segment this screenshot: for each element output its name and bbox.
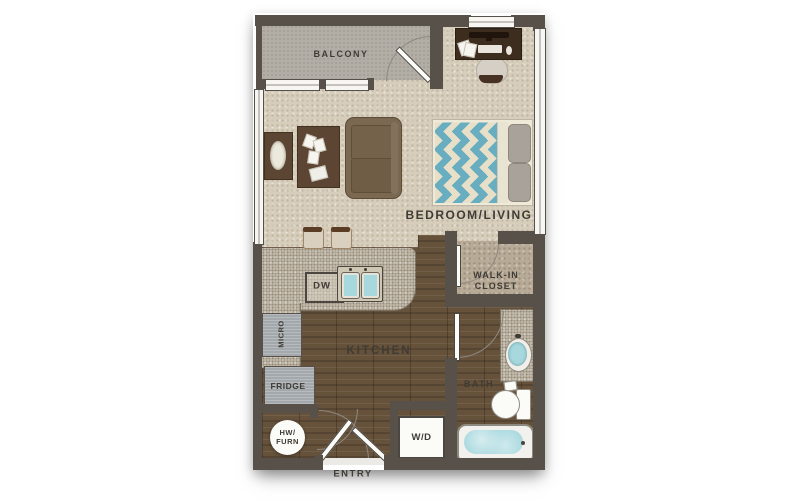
entry-jamb bbox=[315, 455, 323, 470]
room-label-bedroom-living: BEDROOM/LIVING bbox=[405, 208, 532, 222]
bedroom-top-window bbox=[468, 16, 515, 28]
hw-furn-label-line2: FURN bbox=[276, 438, 299, 446]
sink-basin bbox=[361, 272, 380, 299]
bath-vanity bbox=[500, 309, 535, 382]
faucet-icon bbox=[364, 268, 367, 271]
wall-segment bbox=[253, 242, 262, 469]
balcony-window bbox=[265, 79, 320, 91]
stool-back bbox=[331, 227, 350, 232]
wall-segment bbox=[533, 231, 545, 469]
bed-pillow bbox=[508, 163, 531, 202]
vanity-sink-basin bbox=[508, 342, 527, 366]
balcony-window bbox=[325, 79, 369, 91]
hw-closet-wall bbox=[253, 404, 317, 413]
bathtub-drain-icon bbox=[521, 441, 525, 445]
magazine bbox=[307, 150, 320, 164]
bar-stool bbox=[331, 228, 352, 249]
living-left-window bbox=[254, 89, 264, 245]
wall-segment bbox=[443, 15, 471, 27]
sofa-cushion bbox=[351, 158, 393, 193]
room-label-kitchen: KITCHEN bbox=[346, 345, 411, 357]
bathtub-water bbox=[464, 430, 523, 454]
bedroom-right-window bbox=[534, 28, 546, 235]
wall-segment bbox=[253, 458, 319, 470]
bed-pillow bbox=[508, 124, 531, 163]
mouse-icon bbox=[506, 46, 512, 55]
bed bbox=[432, 119, 533, 206]
bath-wall bbox=[445, 358, 457, 469]
toilet-bowl bbox=[491, 390, 520, 419]
kitchen-sink bbox=[337, 266, 383, 302]
blanket-chevron-pattern bbox=[435, 122, 497, 203]
desk-chair-back bbox=[479, 75, 503, 83]
faucet-icon bbox=[349, 268, 352, 271]
closet-wall bbox=[445, 294, 545, 307]
floorplan-canvas: HW/ FURN W/D bbox=[0, 0, 800, 500]
sofa-back bbox=[391, 122, 398, 194]
wall-segment bbox=[430, 15, 443, 89]
bed-sheet-fold bbox=[497, 122, 508, 203]
room-label-balcony: BALCONY bbox=[314, 49, 369, 59]
desk bbox=[455, 28, 522, 60]
studio-floorplan: HW/ FURN W/D bbox=[253, 13, 545, 470]
sofa-cushion bbox=[351, 125, 393, 160]
wd-nook-wall bbox=[390, 401, 398, 469]
bath-door-leaf bbox=[454, 313, 460, 361]
wd-label: W/D bbox=[412, 432, 432, 443]
monitor-stand bbox=[486, 38, 492, 41]
hw-furnace: HW/ FURN bbox=[270, 420, 305, 455]
room-label-bath: BATH bbox=[464, 379, 494, 389]
closet-label-line2: CLOSET bbox=[473, 281, 519, 292]
room-label-walk-in-closet: WALK-IN CLOSET bbox=[473, 270, 519, 293]
laptop-icon bbox=[309, 165, 329, 182]
bed-blanket bbox=[435, 122, 497, 203]
hw-closet-jamb bbox=[310, 404, 318, 418]
wd-nook-wall bbox=[390, 401, 445, 410]
sofa bbox=[345, 117, 402, 199]
dishwasher-label: DW bbox=[313, 281, 331, 292]
vanity-faucet-icon bbox=[515, 334, 521, 338]
fridge-label: FRIDGE bbox=[270, 381, 305, 391]
wall-segment bbox=[255, 15, 443, 26]
wood-floor-passage bbox=[418, 235, 448, 249]
bar-stool bbox=[303, 228, 324, 249]
toilet bbox=[491, 389, 531, 419]
coffee-table bbox=[297, 126, 340, 188]
desk-papers bbox=[463, 42, 478, 58]
stool-back bbox=[303, 227, 322, 232]
microwave-label: MICRO bbox=[277, 320, 286, 348]
closet-label-line1: WALK-IN bbox=[473, 270, 519, 281]
washer-dryer: W/D bbox=[398, 416, 445, 459]
wall-segment bbox=[384, 458, 545, 470]
sink-basin bbox=[341, 272, 360, 299]
entry-threshold bbox=[319, 458, 387, 465]
decor-bowl bbox=[270, 141, 286, 170]
side-table bbox=[264, 132, 293, 180]
room-label-entry: ENTRY bbox=[333, 469, 372, 480]
keyboard-icon bbox=[478, 45, 502, 53]
